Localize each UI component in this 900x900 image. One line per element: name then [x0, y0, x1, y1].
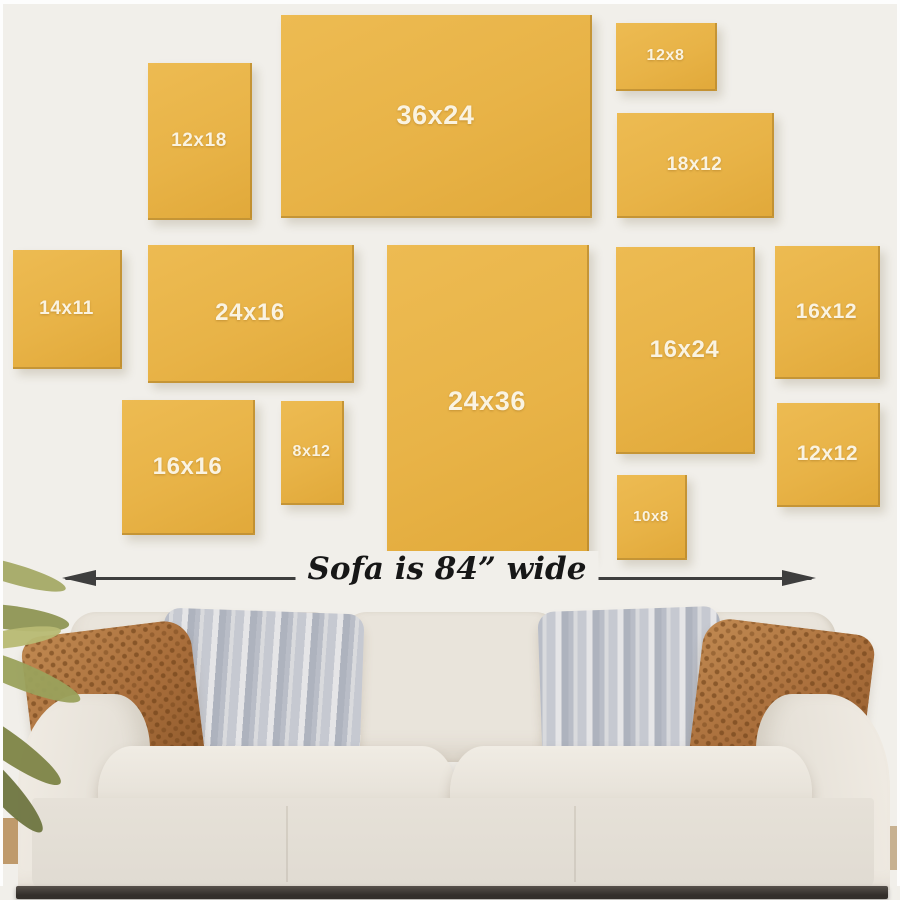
sofa-skirt-seam [286, 806, 288, 882]
sofa-skirt-seam [574, 806, 576, 882]
arrow-right-icon [782, 570, 816, 586]
arrow-left-icon [62, 570, 96, 586]
size-guide-scene: 12x18 36x24 12x8 18x12 14x11 24x16 24x36… [0, 0, 900, 900]
sofa-width-label: Sofa is 84” wide [296, 551, 599, 587]
photo-edge [0, 0, 3, 886]
sofa-base [32, 798, 874, 890]
photo-edge [0, 0, 900, 4]
sofa-back-cushion-center [341, 612, 561, 762]
floor-shadow [16, 886, 888, 899]
